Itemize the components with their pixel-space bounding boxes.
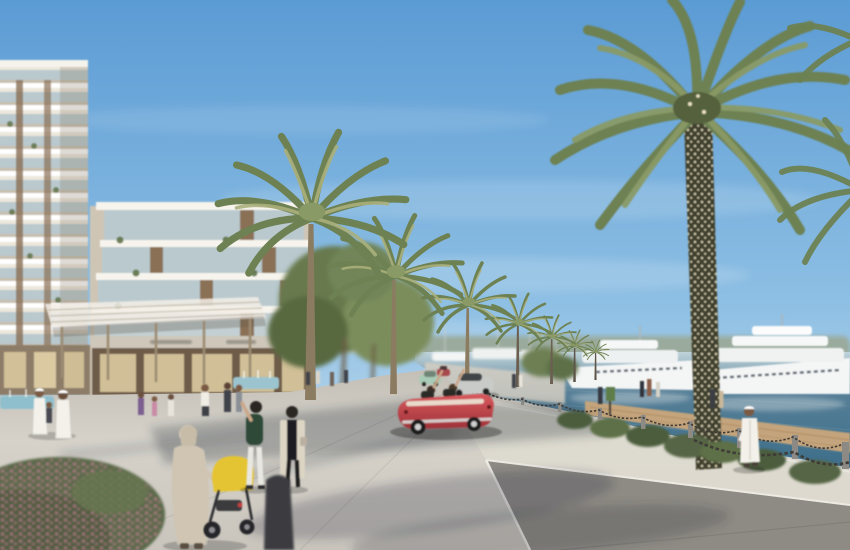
partial-figure: [264, 475, 294, 550]
waterfront-render: [0, 0, 850, 550]
tower-building: [0, 60, 92, 395]
